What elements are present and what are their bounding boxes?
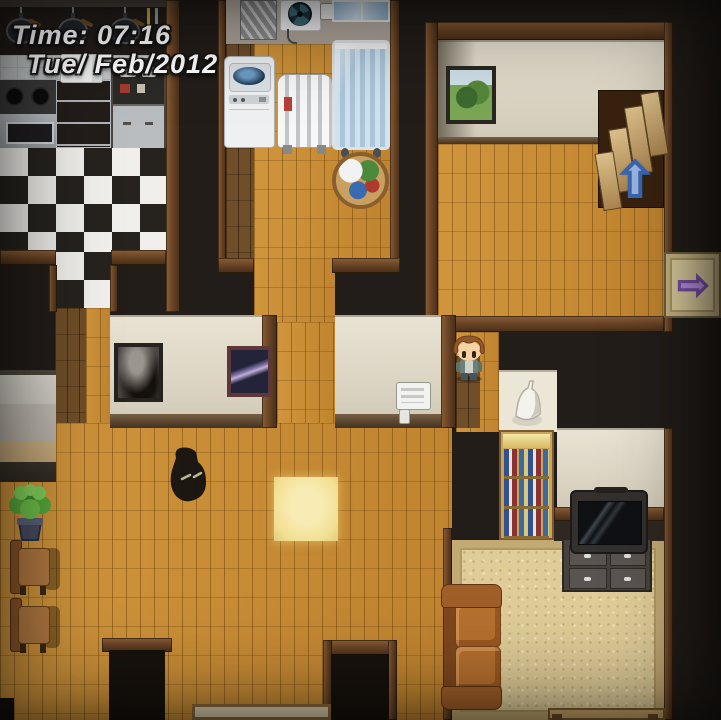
- dark-painting: [114, 343, 163, 402]
- phone-handset: [399, 409, 410, 424]
- radiator-heater: [277, 74, 333, 148]
- shadow-creature[interactable]: [166, 444, 212, 506]
- corridor-north-floor[interactable]: [254, 258, 335, 322]
- east-exit-doormat[interactable]: ➡: [664, 252, 721, 318]
- shower-curtain-rack: [332, 40, 390, 150]
- laundry-east-trim: [390, 0, 400, 273]
- kitchen-south-trim-right: [111, 250, 166, 265]
- stairs-up-arrow-icon[interactable]: ⬆: [608, 152, 662, 208]
- stove-burner: [5, 87, 24, 106]
- doorway-side-trim: [388, 640, 397, 720]
- ventilation-fan: [280, 0, 321, 31]
- potted-plant: [6, 480, 54, 544]
- table-lamp: [506, 376, 550, 430]
- dining-table-edge: [192, 704, 331, 720]
- kitchen-cabinet-drawers: [56, 80, 111, 148]
- hud-date: Tue/ Feb/2012: [27, 49, 218, 80]
- laundry-south-trim-right: [332, 258, 400, 273]
- living-north-wall-east: [335, 315, 443, 428]
- south-doorway[interactable]: [109, 650, 165, 720]
- tv-room-east-trim: [664, 428, 673, 720]
- night-painting: [227, 346, 272, 397]
- exit-right-arrow-icon: ➡: [677, 267, 707, 303]
- hall-west-trim: [425, 22, 438, 332]
- washing-machine[interactable]: [224, 56, 275, 148]
- glowing-floor-tile[interactable]: [274, 477, 338, 541]
- kitchen-south-trim-left: [0, 250, 56, 265]
- kitchen-passage-trim-right: [110, 265, 118, 312]
- television[interactable]: [570, 490, 648, 554]
- corner-shadow: [0, 698, 14, 720]
- wall-baseboard: [335, 414, 443, 428]
- south-doorway[interactable]: [331, 654, 389, 720]
- table-leg: [552, 714, 562, 720]
- jar: [137, 84, 145, 93]
- laundry-south-trim-left: [218, 258, 254, 273]
- radiator-dial: [284, 97, 292, 111]
- kitchen-passage-floor[interactable]: [56, 252, 111, 310]
- player-character[interactable]: [449, 334, 489, 382]
- hud-time: Time: 07:16: [12, 20, 171, 51]
- wall-baseboard: [110, 414, 277, 428]
- game-viewport[interactable]: ⬆ ➡: [0, 0, 721, 720]
- dining-chair[interactable]: [10, 598, 52, 656]
- corridor-doorway-floor[interactable]: [277, 322, 335, 430]
- stove-burner: [31, 87, 50, 106]
- oven-window: [6, 122, 54, 144]
- couch[interactable]: [441, 584, 500, 708]
- stove: [0, 80, 56, 148]
- kitchen-checker-floor: [0, 148, 166, 252]
- dining-chair[interactable]: [10, 540, 52, 598]
- table-leg: [648, 714, 658, 720]
- window: [332, 0, 390, 22]
- laundry-basket[interactable]: [332, 152, 389, 209]
- hall-north-trim: [425, 22, 673, 40]
- hallway-oak-floor: [86, 308, 110, 423]
- kitchen-passage-trim-left: [49, 265, 57, 312]
- entry-counter: [0, 370, 56, 482]
- red-jar: [120, 84, 130, 93]
- tv-screen: [578, 501, 642, 545]
- bookshelf[interactable]: [499, 430, 554, 540]
- landscape-painting: [446, 66, 496, 124]
- washer-drum: [233, 67, 265, 85]
- tv-handle: [594, 487, 628, 493]
- window-blinds: [240, 0, 277, 40]
- wall-phone[interactable]: [396, 382, 431, 410]
- fan-cord: [287, 29, 297, 44]
- bookshelf-lit-top: [503, 434, 550, 448]
- hall-south-trim: [438, 316, 664, 332]
